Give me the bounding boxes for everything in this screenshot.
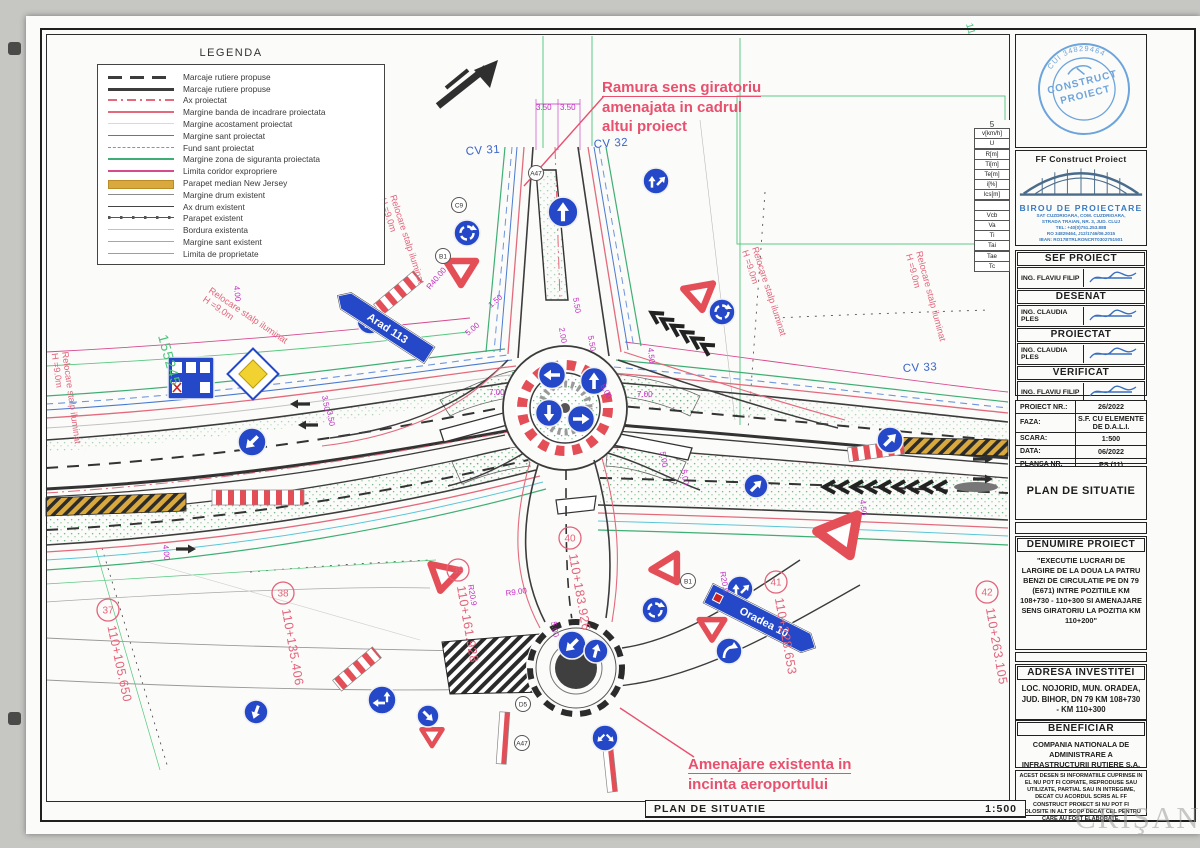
role-section: VERIFICAT ING. FLAVIU FILIP <box>1016 366 1146 403</box>
legend-label: Parapet existent <box>183 213 243 223</box>
legend-row: Limita de proprietate <box>108 248 376 260</box>
project-title-box: DENUMIRE PROIECT "EXECUTIE LUCRARI DE LA… <box>1015 536 1147 650</box>
legend-row: Margine sant proiectat <box>108 130 376 142</box>
legend-label: Margine sant proiectat <box>183 131 265 141</box>
bridge-logo <box>1016 164 1146 198</box>
legend-label: Margine zona de siguranta proiectata <box>183 154 320 164</box>
field-label: PROIECT NR.: <box>1016 401 1076 413</box>
footer-bar: PLAN DE SITUATIE 1:500 <box>645 800 1026 818</box>
role-name: ING. CLAUDIA PLES <box>1018 347 1083 361</box>
signature <box>1083 383 1144 401</box>
legend-label: Bordura existenta <box>183 225 248 235</box>
legend-line-sample <box>108 214 174 222</box>
beneficiary-box: BENEFICIAR COMPANIA NATIONALA DE ADMINIS… <box>1015 720 1147 768</box>
legend-line-sample <box>108 144 174 152</box>
company-address: SAT CUZDRIOARA, COM. CUZDRIOARA,STRADA T… <box>1016 213 1146 243</box>
legend-line-sample <box>108 238 174 246</box>
note-amenajare-line1: Amenajare existenta in <box>688 756 851 774</box>
curve-elements-table: 5 v[km/h]UR[m]Ti[m]Te[m]i[%]lcs[m] VcbVa… <box>974 120 1010 272</box>
role-name: ING. FLAVIU FILIP <box>1018 389 1083 396</box>
office-name: BIROU DE PROIECTARE <box>1016 203 1146 213</box>
legend-row: Margine sant existent <box>108 236 376 248</box>
plan-sheet: Arad 113 Oradea 10 <box>0 0 1200 848</box>
legend-label: Ax proiectat <box>183 95 227 105</box>
field-label: FAZA: <box>1016 414 1076 432</box>
address-heading: ADRESA INVESTITEI <box>1017 666 1145 680</box>
role-title: PROIECTAT <box>1017 328 1145 342</box>
footer-title: PLAN DE SITUATIE <box>654 803 766 815</box>
legend-row: Margine acostament proiectat <box>108 118 376 130</box>
legend-line-sample <box>108 203 174 211</box>
legend-row: Ax drum existent <box>108 201 376 213</box>
legend-line-sample <box>108 96 174 104</box>
logo-box: FF Construct Proiect BIROU DE PROIECTARE… <box>1015 150 1147 246</box>
legend-line-sample <box>108 250 174 258</box>
legend-row: Bordura existenta <box>108 224 376 236</box>
legend-label: Limita de proprietate <box>183 249 259 259</box>
note-ramura: Ramura sens giratoriu amenajata in cadru… <box>602 78 812 137</box>
curve-table-row: Tc <box>974 261 1010 272</box>
signature <box>1083 269 1144 287</box>
legend-row: Margine banda de incadrare proiectata <box>108 106 376 118</box>
role-title: VERIFICAT <box>1017 366 1145 380</box>
legend-title: LEGENDA <box>97 47 365 59</box>
legend-row: Margine drum existent <box>108 189 376 201</box>
company-name: FF Construct Proiect <box>1016 151 1146 164</box>
legend-line-sample <box>108 155 174 163</box>
field-value: 1:500 <box>1076 434 1146 444</box>
legend-line-sample <box>108 120 174 128</box>
role-section: DESENAT ING. CLAUDIA PLES <box>1016 290 1146 327</box>
role-name: ING. FLAVIU FILIP <box>1018 275 1083 282</box>
field-row: FAZA: S.F. CU ELEMENTE DE D.A.L.I. <box>1016 414 1146 433</box>
legend-label: Marcaje rutiere propuse <box>183 72 271 82</box>
spacer-box <box>1015 652 1147 662</box>
fields-box: PROIECT NR.: 26/2022 FAZA: S.F. CU ELEME… <box>1015 400 1147 464</box>
roles-box: SEF PROIECT ING. FLAVIU FILIP DESENAT IN… <box>1015 250 1147 396</box>
spacer-box <box>1015 522 1147 534</box>
role-section: PROIECTAT ING. CLAUDIA PLES <box>1016 328 1146 365</box>
legend-row: Limita coridor expropriere <box>108 165 376 177</box>
field-row: SCARA: 1:500 <box>1016 433 1146 446</box>
project-title-text: "EXECUTIE LUCRARI DE LARGIRE DE LA DOUA … <box>1016 553 1146 629</box>
curve-table-rows: v[km/h]UR[m]Ti[m]Te[m]i[%]lcs[m] VcbVaTi… <box>974 128 1010 272</box>
legend-row: Ax proiectat <box>108 95 376 107</box>
beneficiary-text: COMPANIA NATIONALA DE ADMINISTRARE A INF… <box>1016 737 1146 773</box>
plan-name: PLAN DE SITUATIE <box>1016 467 1146 497</box>
legend-label: Margine banda de incadrare proiectata <box>183 107 326 117</box>
legend-row: Parapet existent <box>108 213 376 225</box>
field-label: SCARA: <box>1016 433 1076 445</box>
plan-name-box: PLAN DE SITUATIE <box>1015 466 1147 520</box>
role-section: SEF PROIECT ING. FLAVIU FILIP <box>1016 252 1146 289</box>
legend-label: Margine drum existent <box>183 190 265 200</box>
note-ramura-line2: amenajata in cadrul <box>602 99 742 116</box>
note-ramura-line1: Ramura sens giratoriu <box>602 79 761 97</box>
note-amenajare-line2: incinta aeroportului <box>688 776 828 793</box>
legend-label: Limita coridor expropriere <box>183 166 277 176</box>
note-ramura-line3: altui proiect <box>602 118 687 135</box>
role-name: ING. CLAUDIA PLES <box>1018 309 1083 323</box>
legend-row: Marcaje rutiere propuse <box>108 71 376 83</box>
legend-line-sample <box>108 132 174 140</box>
company-stamp: CUI 34829464 CONSTRUCT PROIECT <box>1016 35 1146 145</box>
role-title: SEF PROIECT <box>1017 252 1145 266</box>
field-value: S.F. CU ELEMENTE DE D.A.L.I. <box>1076 414 1146 432</box>
address-text: LOC. NOJORID, MUN. ORADEA, JUD. BIHOR, D… <box>1016 681 1146 719</box>
legend-line-sample <box>108 167 174 175</box>
legend-label: Fund sant proiectat <box>183 143 254 153</box>
footer-scale: 1:500 <box>985 803 1017 815</box>
legend-line-sample <box>108 179 174 187</box>
signature <box>1083 307 1144 325</box>
legend-line-sample <box>108 191 174 199</box>
project-title-heading: DENUMIRE PROIECT <box>1017 538 1145 552</box>
field-value: 06/2022 <box>1076 447 1146 457</box>
field-label: DATA: <box>1016 446 1076 458</box>
legend-row: Parapet median New Jersey <box>108 177 376 189</box>
legend-row: Margine zona de siguranta proiectata <box>108 154 376 166</box>
legend-label: Margine sant existent <box>183 237 262 247</box>
legend-row: Marcaje rutiere propuse <box>108 83 376 95</box>
stamp-box: CUI 34829464 CONSTRUCT PROIECT <box>1015 34 1147 148</box>
field-value: 26/2022 <box>1076 402 1146 412</box>
beneficiary-heading: BENEFICIAR <box>1017 722 1145 736</box>
signature <box>1083 345 1144 363</box>
legend-label: Parapet median New Jersey <box>183 178 287 188</box>
legend-line-sample <box>108 85 174 93</box>
legend-line-sample <box>108 73 174 81</box>
legend-box: Marcaje rutiere propuse Marcaje rutiere … <box>97 64 385 265</box>
address-box: ADRESA INVESTITEI LOC. NOJORID, MUN. ORA… <box>1015 664 1147 720</box>
legend-row: Fund sant proiectat <box>108 142 376 154</box>
legend-label: Marcaje rutiere propuse <box>183 84 271 94</box>
legend-line-sample <box>108 226 174 234</box>
legend-line-sample <box>108 108 174 116</box>
watermark: CRIŞANA <box>1075 800 1200 836</box>
note-amenajare: Amenajare existenta in incinta aeroportu… <box>688 755 888 794</box>
address-line: IBAN: RO17BTRLRONCRT0302751501 <box>1016 237 1146 243</box>
role-title: DESENAT <box>1017 290 1145 304</box>
field-row: DATA: 06/2022 <box>1016 446 1146 459</box>
legend-label: Margine acostament proiectat <box>183 119 292 129</box>
legend-label: Ax drum existent <box>183 202 245 212</box>
field-row: PROIECT NR.: 26/2022 <box>1016 401 1146 414</box>
